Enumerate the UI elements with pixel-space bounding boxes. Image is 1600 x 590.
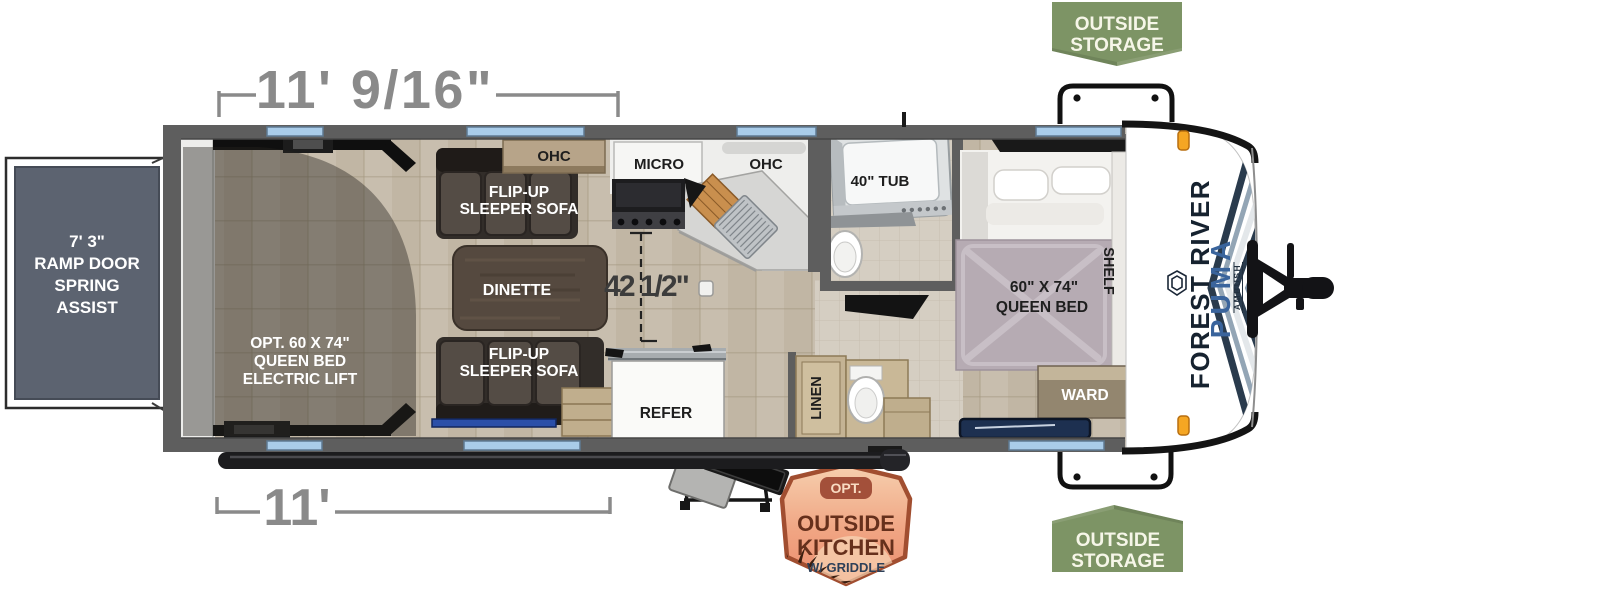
svg-text:SPRING: SPRING — [54, 276, 119, 295]
svg-text:ELECTRIC LIFT: ELECTRIC LIFT — [243, 371, 358, 388]
svg-text:DINETTE: DINETTE — [483, 282, 552, 299]
svg-text:OHC: OHC — [749, 156, 783, 173]
svg-text:OPT. 60 X 74": OPT. 60 X 74" — [250, 335, 350, 352]
svg-text:STORAGE: STORAGE — [1071, 551, 1165, 572]
svg-text:OUTSIDE: OUTSIDE — [1076, 530, 1160, 551]
svg-text:OUTSIDE: OUTSIDE — [1075, 14, 1159, 35]
svg-text:SLEEPER SOFA: SLEEPER SOFA — [460, 201, 579, 218]
svg-text:40" TUB: 40" TUB — [851, 173, 910, 190]
svg-text:SLEEPER SOFA: SLEEPER SOFA — [460, 363, 579, 380]
svg-text:QUEEN BED: QUEEN BED — [996, 299, 1088, 316]
svg-text:W/ GRIDDLE: W/ GRIDDLE — [807, 560, 885, 575]
svg-text:42 1/2": 42 1/2" — [604, 270, 688, 303]
svg-text:11': 11' — [263, 479, 330, 537]
svg-text:STORAGE: STORAGE — [1070, 35, 1164, 56]
svg-text:KITCHEN: KITCHEN — [797, 535, 895, 560]
svg-text:RAMP DOOR: RAMP DOOR — [34, 254, 139, 273]
svg-text:MICRO: MICRO — [634, 156, 684, 173]
svg-text:60" X 74": 60" X 74" — [1010, 279, 1078, 296]
svg-text:ASSIST: ASSIST — [56, 298, 118, 317]
svg-text:REFER: REFER — [640, 405, 693, 422]
svg-text:OHC: OHC — [537, 148, 571, 165]
svg-text:11' 9/16": 11' 9/16" — [256, 60, 494, 120]
svg-text:7' 3": 7' 3" — [69, 232, 105, 251]
svg-text:OUTSIDE: OUTSIDE — [797, 511, 895, 536]
svg-text:WARD: WARD — [1061, 387, 1108, 404]
svg-text:QUEEN BED: QUEEN BED — [254, 353, 346, 370]
svg-text:SHELF: SHELF — [1100, 247, 1116, 295]
svg-text:LINEN: LINEN — [809, 376, 825, 420]
svg-text:OPT.: OPT. — [830, 480, 861, 496]
svg-text:FLIP-UP: FLIP-UP — [489, 346, 549, 363]
svg-text:FLIP-UP: FLIP-UP — [489, 184, 549, 201]
